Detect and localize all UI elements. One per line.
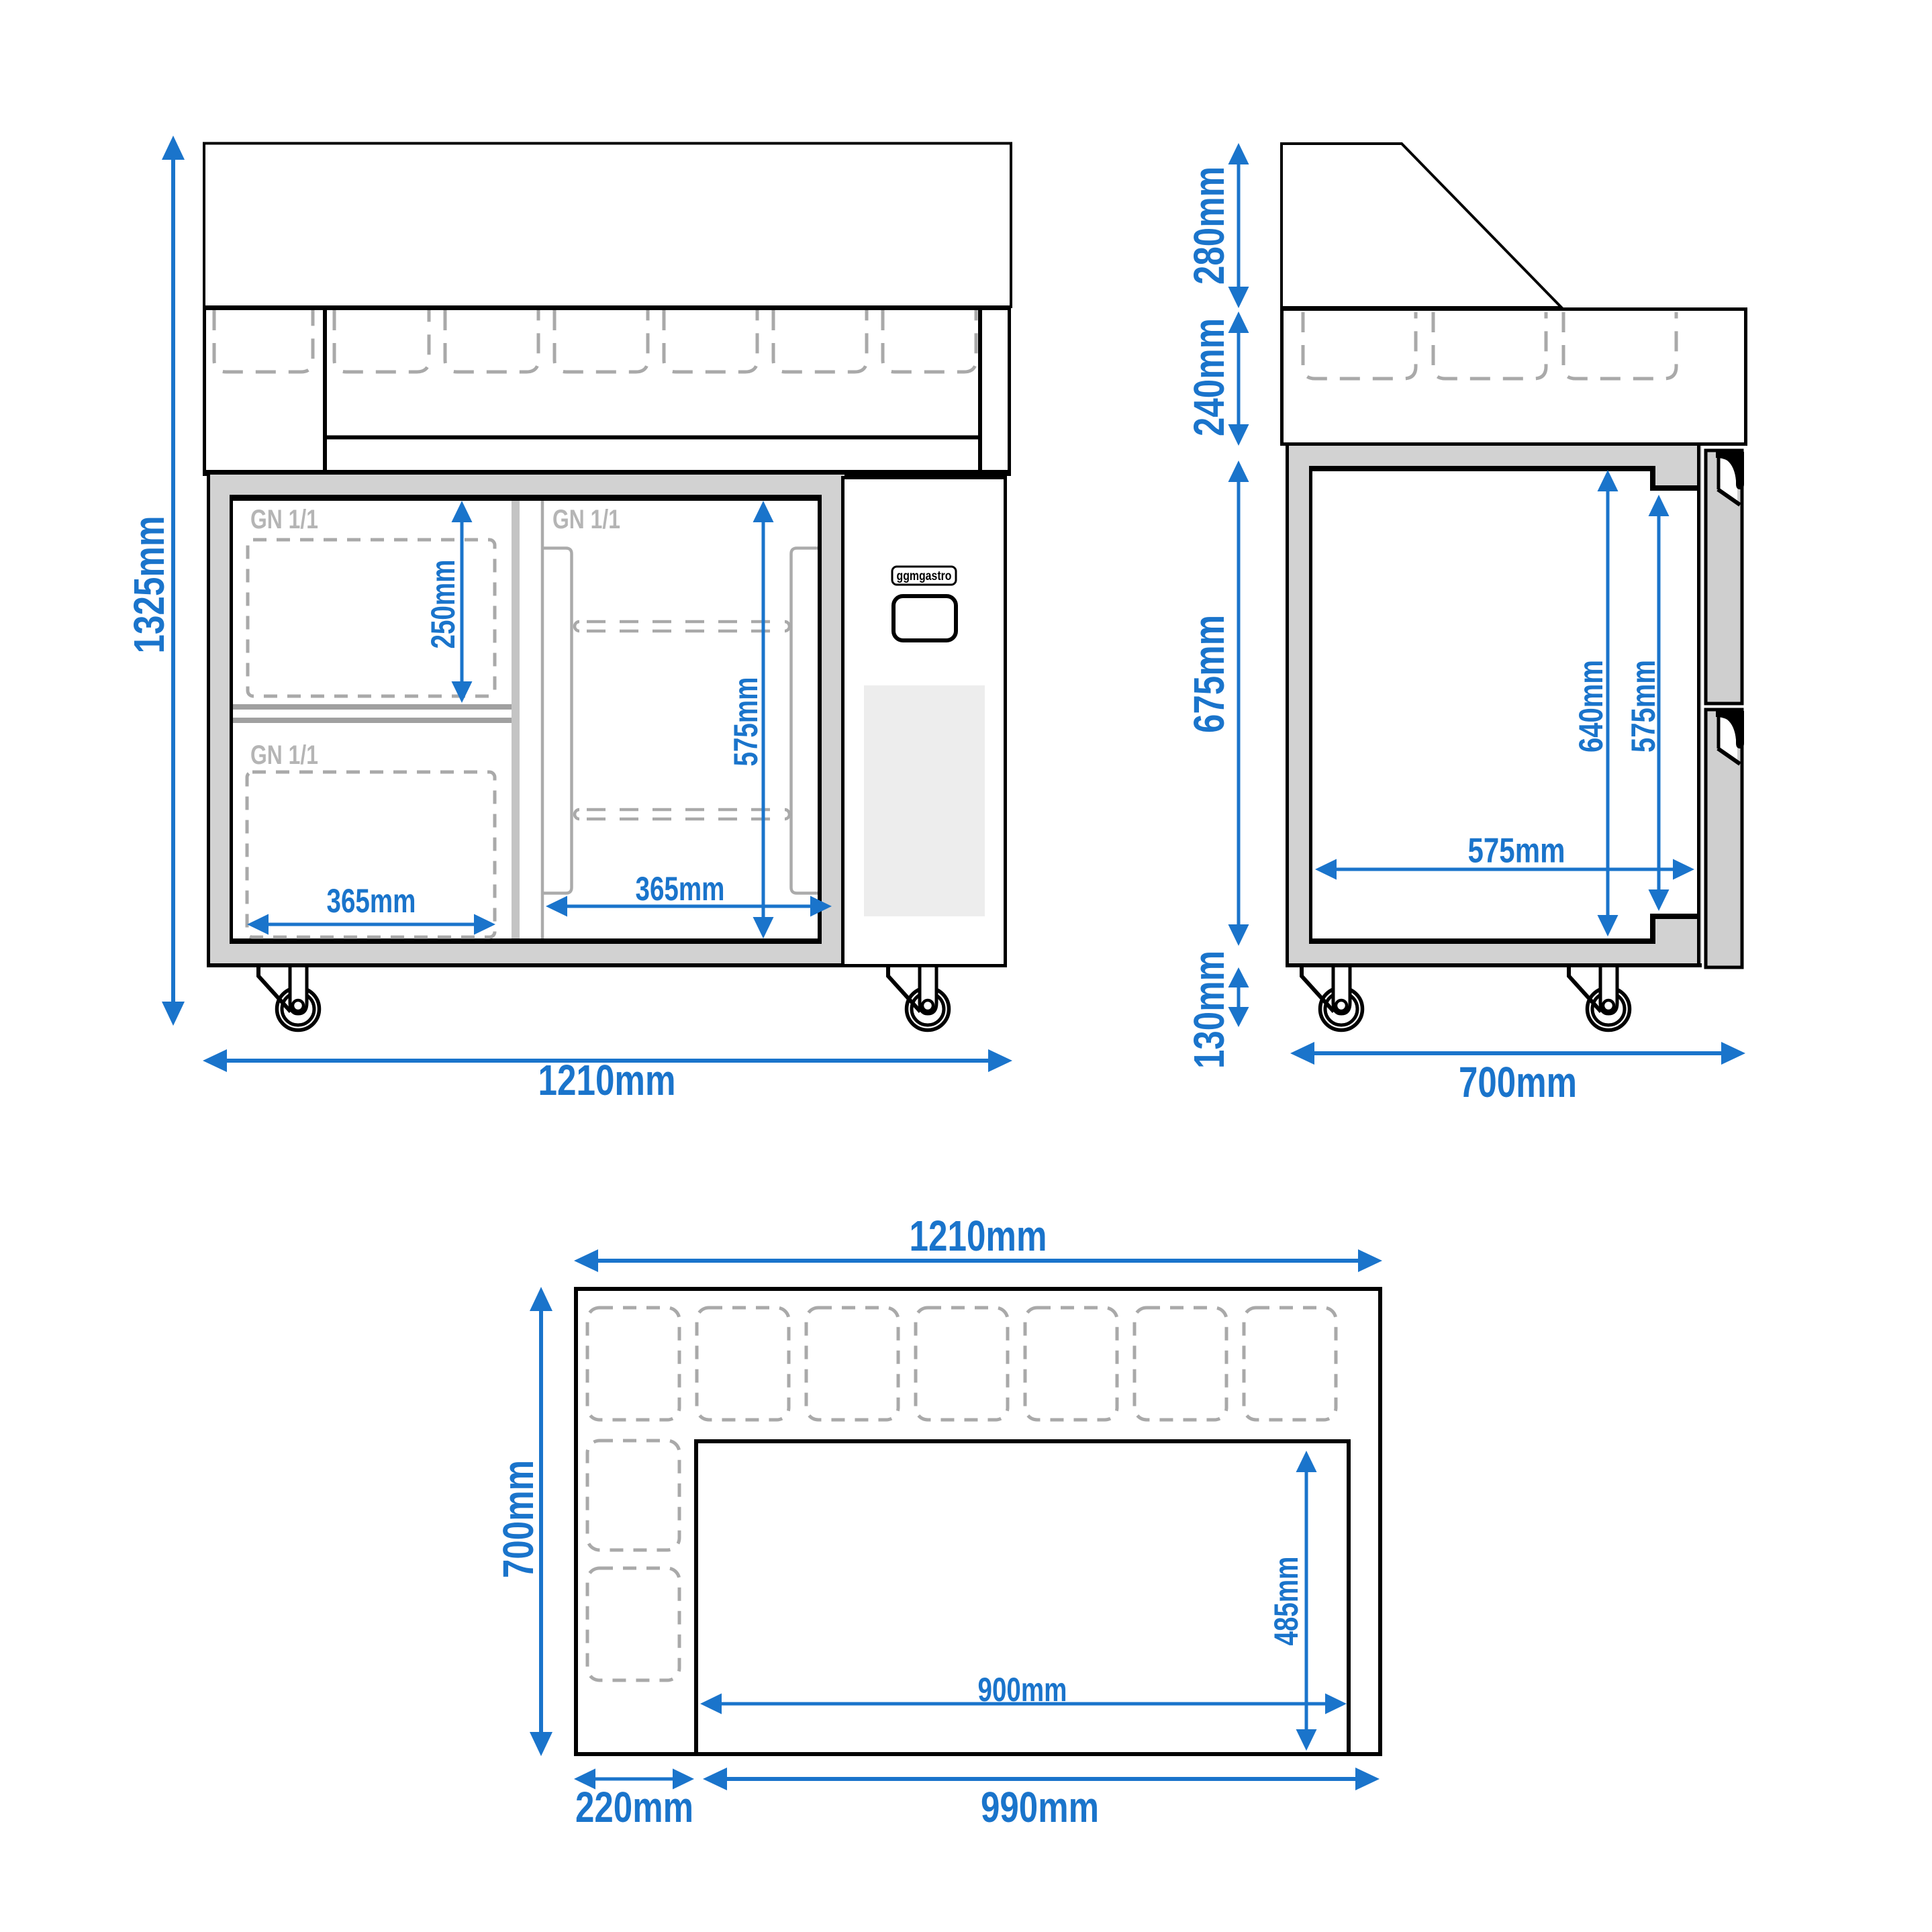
svg-text:220mm: 220mm — [575, 1783, 693, 1831]
svg-text:365mm: 365mm — [327, 882, 416, 920]
svg-text:675mm: 675mm — [1185, 615, 1233, 733]
svg-text:900mm: 900mm — [978, 1671, 1067, 1708]
svg-text:ggmgastro: ggmgastro — [897, 569, 952, 583]
svg-text:250mm: 250mm — [424, 560, 462, 649]
svg-text:GN 1/1: GN 1/1 — [250, 505, 318, 534]
svg-text:700mm: 700mm — [1459, 1058, 1577, 1106]
svg-text:1210mm: 1210mm — [910, 1212, 1047, 1260]
svg-text:990mm: 990mm — [981, 1783, 1099, 1831]
svg-text:130mm: 130mm — [1185, 951, 1233, 1069]
svg-text:640mm: 640mm — [1572, 660, 1610, 753]
svg-text:1325mm: 1325mm — [125, 516, 173, 654]
svg-text:1210mm: 1210mm — [538, 1056, 676, 1104]
svg-text:575mm: 575mm — [1468, 832, 1565, 871]
svg-text:575mm: 575mm — [727, 677, 765, 767]
svg-text:485mm: 485mm — [1267, 1557, 1305, 1646]
svg-text:GN 1/1: GN 1/1 — [250, 740, 318, 770]
svg-text:GN 1/1: GN 1/1 — [552, 505, 620, 534]
svg-text:365mm: 365mm — [636, 870, 725, 908]
svg-text:240mm: 240mm — [1185, 318, 1233, 436]
svg-text:700mm: 700mm — [494, 1460, 542, 1578]
svg-text:575mm: 575mm — [1625, 660, 1662, 753]
svg-text:280mm: 280mm — [1185, 166, 1233, 285]
